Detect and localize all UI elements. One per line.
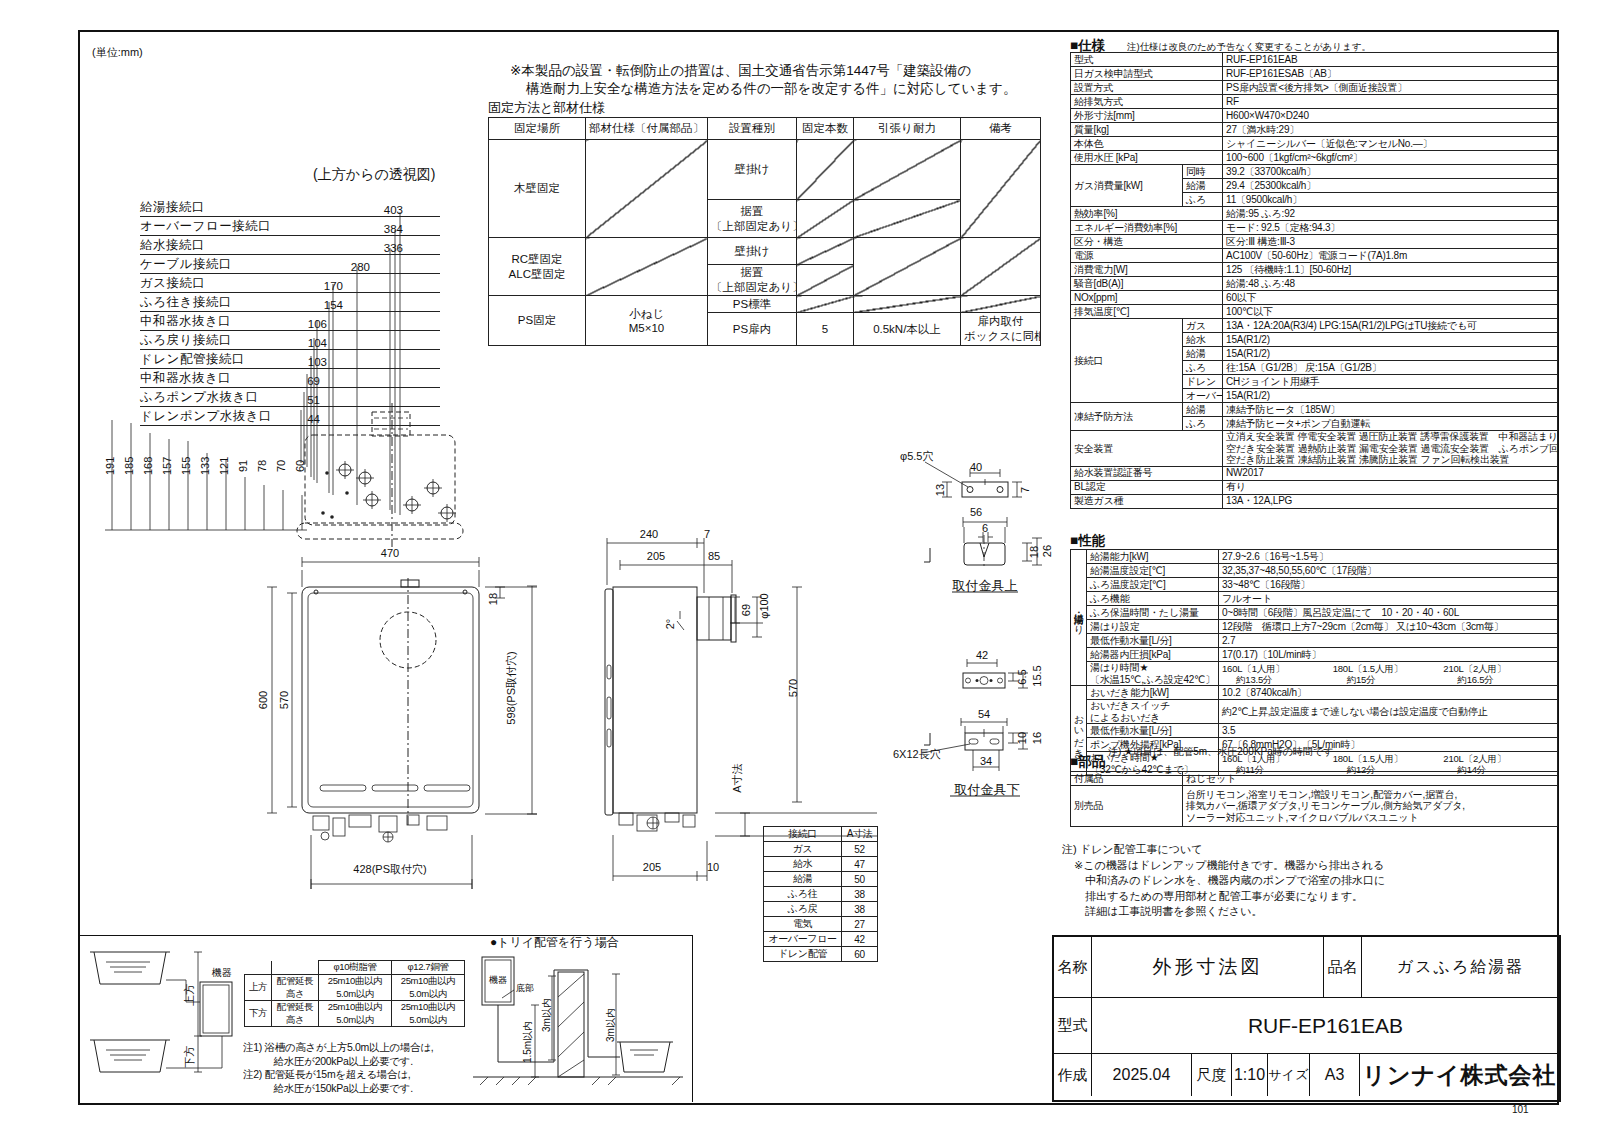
perf-value: 12段階 循環口上方7~29cm〔2cm毎〕 又は10~43cm〔3cm毎〕	[1219, 620, 1558, 634]
parts-accessory-value: ねじセット	[1183, 772, 1558, 786]
spec-gas-val2: 11〔9500kcal/h〕	[1223, 193, 1558, 207]
spec-safety-value: 立消え安全装置 停電安全装置 過圧防止装置 誘導雷保護装置 中和器詰まり検知装置…	[1223, 431, 1558, 467]
spec-value: 有り	[1223, 480, 1558, 494]
page-number: 101	[1512, 1104, 1529, 1115]
parts-optional-row: 別売品台所リモコン,浴室リモコン,増設リモコン,配管カバー,据置台,排気カバー,…	[1071, 786, 1558, 827]
fixing-ps-std: PS標準	[708, 296, 797, 313]
fixing-count: 5	[797, 313, 854, 346]
conn-row: 給水47	[764, 857, 878, 872]
tb-product: ガスふろ給湯器	[1362, 937, 1559, 997]
title-block-row1: 名称 外形寸法図 品名 ガスふろ給湯器	[1054, 937, 1559, 998]
yubari-time2: 約16.5分	[1443, 674, 1554, 685]
port-dim: 154	[324, 299, 440, 311]
spec-key: 型式	[1071, 53, 1223, 67]
spec-row: 消費電力[W]125 〔待機時:1.1〕[50-60Hz]	[1071, 263, 1558, 277]
fixing-table-title: 固定方法と部材仕様	[488, 99, 605, 117]
fixing-floor2-l1: 据置	[711, 265, 793, 280]
na-cell	[961, 238, 1041, 296]
port-dim: 69	[307, 375, 440, 387]
spec-value: 100℃以下	[1223, 305, 1558, 319]
pv2a: 5.0m以内	[322, 1014, 388, 1027]
spec-key: 排気温度[℃]	[1071, 305, 1223, 319]
pk2: 高さ	[275, 1014, 315, 1027]
conn-row: ふろ戻38	[764, 902, 878, 917]
optional-line3: ソーラー対応ユニット,マイクロバブルバスユニット	[1186, 812, 1554, 824]
na-cell	[961, 296, 1041, 313]
dim-side-a: A寸法	[731, 763, 743, 792]
tb-name: 外形寸法図	[1092, 937, 1324, 997]
spec-value: RF	[1223, 95, 1558, 109]
title-block-row2: 型式 RUF-EP161EAB	[1054, 998, 1559, 1054]
dim-front-ps-horizontal: 428(PS取付穴)	[353, 863, 426, 875]
port-row: ふろ往き接続口 154	[140, 293, 440, 312]
dim-side-bottom-10: 10	[707, 861, 719, 873]
bath-notes: 注1) 浴槽の高さが上方5.0m以上の場合は, 給水圧が200kPa以上必要です…	[243, 1041, 433, 1095]
torii-caption: ●トリイ配管を行う場合	[490, 936, 619, 949]
dim-front-offset: 18	[487, 593, 499, 605]
spec-value: PS扉内設置<後方排気>〔側面近接設置〕	[1223, 81, 1558, 95]
fixing-ps: PS固定	[489, 296, 586, 346]
spec-freeze-label: 凍結予防方法	[1071, 403, 1183, 431]
fixing-h0: 固定場所	[489, 118, 586, 140]
oidaki-col1: 180L〔1.5人用〕	[1333, 753, 1444, 764]
pk2: 高さ	[275, 988, 315, 1001]
spec-row: 給排気方式RF	[1071, 95, 1558, 109]
spec-value: 給湯:95 ふろ:92	[1223, 207, 1558, 221]
perf-value: フルオート	[1219, 592, 1558, 606]
piping-keys: 配管延長高さ	[272, 1001, 319, 1027]
spec-key: 給排気方式	[1071, 95, 1223, 109]
pv2b: 5.0m以内	[395, 1014, 461, 1027]
spec-value: 13A・12A,LPG	[1223, 494, 1558, 508]
conn-h0: 接続口	[764, 827, 842, 842]
dim-front-height: 600	[257, 691, 269, 709]
spec-conn-val3: 往:15A〔G1/2B〕 戻:15A〔G1/2B〕	[1223, 361, 1558, 375]
spec-conn-val5: 15A(R1/2)	[1223, 389, 1558, 403]
fixing-row-rc-wall: RC壁固定ALC壁固定壁掛け	[489, 238, 1041, 265]
port-label: オーバーフロー接続口	[140, 218, 271, 235]
port-row: ガス接続口 170	[140, 274, 440, 293]
port-label: ふろ戻り接続口	[140, 332, 232, 349]
conn-row: ドレン配管60	[764, 947, 878, 962]
installation-note-line1: ※本製品の設置・転倒防止の措置は、国土交通省告示第1447号「建築設備の	[510, 62, 1016, 80]
spec-row: 使用水圧 [kPa]100~600〔1kgf/cm²~6kgf/cm²〕	[1071, 151, 1558, 165]
fixing-h3: 固定本数	[797, 118, 854, 140]
spec-conn-sub5: オーバーフロー	[1183, 389, 1223, 403]
perf-value: 27.9~2.6〔16号~1.5号〕	[1219, 550, 1558, 564]
port-label: 給湯接続口	[140, 199, 205, 216]
spec-key: 日ガス検申請型式	[1071, 67, 1223, 81]
perf-value: 33~48℃〔16段階〕	[1219, 578, 1558, 592]
bracket-drawings	[880, 445, 1065, 800]
parts-accessory-label: 付属品	[1071, 772, 1183, 786]
optional-line2: 排気カバー,循環アダプタ,リモコンケーブル,側方給気アダプタ,	[1186, 800, 1554, 812]
spec-conn-row0: 接続口ガス13A・12A:20A(R3/4) LPG:15A(R1/2)LPGは…	[1071, 319, 1558, 333]
bracket-dim-155: 15.5	[1031, 665, 1043, 686]
perf-switch-k2: によるおいだき	[1090, 712, 1215, 724]
safety-line1: 立消え安全装置 停電安全装置 過圧防止装置 誘導雷保護装置 中和器詰まり検知装置	[1226, 431, 1554, 443]
v-dim: 157	[157, 430, 176, 502]
conn-a-dim: 60	[842, 947, 878, 962]
spec-row: 設置方式PS扉内設置<後方排気>〔側面近接設置〕	[1071, 81, 1558, 95]
spec-freeze-val1: 凍結予防ヒータ+ポンプ自動運転	[1223, 417, 1558, 431]
port-row: ドレンポンプ水抜き口 44	[140, 407, 440, 426]
perf-value: 0~8時間〔6段階〕風呂設定温にて 10・20・40・60L	[1219, 606, 1558, 620]
fixing-remark: 扉内取付ボックスに同梱	[961, 313, 1041, 346]
spec-gas-sub0: 同時	[1183, 165, 1223, 179]
spec-key: 設置方式	[1071, 81, 1223, 95]
parts-table: 付属品ねじセット 別売品台所リモコン,浴室リモコン,増設リモコン,配管カバー,据…	[1070, 771, 1558, 827]
spec-value: 100~600〔1kgf/cm²~6kgf/cm²〕	[1223, 151, 1558, 165]
port-label: ドレンポンプ水抜き口	[140, 408, 272, 425]
spec-value: H600×W470×D240	[1223, 109, 1558, 123]
perf-row: 給湯・湯はり給湯能力[kW]27.9~2.6〔16号~1.5号〕	[1071, 550, 1558, 564]
perf-yubari-key: 湯はり時間★〔水温15℃,ふろ設定42℃〕	[1087, 662, 1219, 686]
v-dim: 168	[138, 430, 157, 502]
port-dim: 103	[308, 356, 440, 368]
port-label: ガス接続口	[140, 275, 206, 292]
tb-model-label: 型式	[1054, 998, 1092, 1053]
drain-note-lines: ※この機器はドレンアップ機能付きです。機器から排出される 中和済みのドレン水を、…	[1062, 858, 1385, 920]
na-cell	[961, 140, 1041, 238]
blank	[272, 961, 319, 975]
conn-port: オーバーフロー	[764, 932, 842, 947]
top-view-caption: (上方からの透視図)	[313, 167, 435, 182]
spec-gas-label: ガス消費量[kW]	[1071, 165, 1183, 207]
port-dim: 44	[307, 413, 440, 425]
port-label: 給水接続口	[140, 237, 205, 254]
fixing-rc-l1: RC壁固定	[492, 252, 582, 267]
perf-yubari-value: 160L〔1人用〕約13.5分180L〔1.5人用〕約15分210L〔2人用〕約…	[1219, 662, 1558, 686]
spec-value: 125 〔待機時:1.1〕[50-60Hz]	[1223, 263, 1558, 277]
perf-key: ふろ保温時間・たし湯量	[1087, 606, 1219, 620]
v-dim: 78	[252, 430, 271, 502]
bracket-slot-label: 6X12長穴	[893, 748, 941, 760]
blank	[245, 961, 272, 975]
dim-side-bottom-205: 205	[643, 861, 661, 873]
perf-row-switch: おいだきスイッチによるおいだき約2℃上昇,設定温度まで達しない場合は設定温度で自…	[1071, 700, 1558, 724]
fixing-rc-l2: ALC壁固定	[492, 267, 582, 282]
piping-header: φ10樹脂管φ12.7銅管	[245, 961, 465, 975]
fixing-wood: 木壁固定	[489, 140, 586, 238]
na-cell	[854, 200, 961, 238]
port-row: ドレン配管接続口 103	[140, 350, 440, 369]
top-view-vertical-dims: 19118516815715513312191787060	[100, 430, 309, 502]
dim-front-inner-height: 570	[278, 691, 290, 709]
fixing-remark-l1: 扉内取付	[964, 314, 1037, 329]
spec-row: 熱効率[%]給湯:95 ふろ:92	[1071, 207, 1558, 221]
perf-value: 2.7	[1219, 634, 1558, 648]
fixing-row-wood-wall: 木壁固定壁掛け	[489, 140, 1041, 200]
piping-row-up: 上方配管延長高さ25m10曲以内5.0m以内25m10曲以内5.0m以内	[245, 975, 465, 1001]
port-label: ふろ往き接続口	[140, 294, 232, 311]
na-cell	[797, 238, 854, 265]
spec-value: 区分:Ⅲ 構造:Ⅲ-3	[1223, 235, 1558, 249]
parts-optional-label: 別売品	[1071, 786, 1183, 827]
performance-note: 注) ★項目は、配管5m、水圧200KPa時の時間です	[1108, 745, 1334, 759]
tb-name-label: 名称	[1054, 937, 1092, 997]
port-label: 中和器水抜き口	[140, 370, 231, 387]
port-dim: 403	[384, 204, 440, 216]
conn-h1: A寸法	[842, 827, 878, 842]
perf-row: 湯はり設定12段階 循環口上方7~29cm〔2cm毎〕 又は10~43cm〔3c…	[1071, 620, 1558, 634]
tb-date-label: 作成	[1054, 1054, 1092, 1096]
pk1: 配管延長	[275, 1001, 315, 1014]
bracket-hole-label: φ5.5穴	[900, 450, 933, 462]
conn-a-dim: 42	[842, 932, 878, 947]
conn-port: 電気	[764, 917, 842, 932]
bracket-dim-40: 40	[970, 461, 982, 473]
perf-key: ふろ温度設定[℃]	[1087, 578, 1219, 592]
perf-row-yubari: 湯はり時間★〔水温15℃,ふろ設定42℃〕 160L〔1人用〕約13.5分180…	[1071, 662, 1558, 686]
dim-side-570: 570	[787, 679, 799, 697]
perf-row: ふろ温度設定[℃]33~48℃〔16段階〕	[1071, 578, 1558, 592]
perf-row: おいだきおいだき能力[kW]10.2〔8740kcal/h〕	[1071, 686, 1558, 700]
spec-value: 27〔満水時:29〕	[1223, 123, 1558, 137]
tb-product-label: 品名	[1324, 937, 1362, 997]
spec-value: シャイニーシルバー〔近似色:マンセルNo.—〕	[1223, 137, 1558, 151]
v-dim: 133	[195, 430, 214, 502]
fixing-pull: 0.5kN/本以上	[854, 313, 961, 346]
piping-col1: φ10樹脂管	[319, 961, 392, 975]
unit-note: (単位:mm)	[92, 46, 143, 58]
tb-size: A3	[1310, 1054, 1360, 1096]
piping-v1: 25m10曲以内5.0m以内	[319, 975, 392, 1001]
perf-switch-key: おいだきスイッチによるおいだき	[1087, 700, 1219, 724]
pv1a: 25m10曲以内	[322, 975, 388, 988]
spec-row: エネルギー消費効率[%]モード: 92.5〔定格:94.3〕	[1071, 221, 1558, 235]
title-block-row3: 作成 2025.04 尺度 1:10 サイズ A3 リンナイ株式会社	[1054, 1054, 1559, 1096]
fixing-rc: RC壁固定ALC壁固定	[489, 238, 586, 296]
bath-note2a: 注2) 配管延長が15mを超える場合は,	[243, 1068, 433, 1082]
tb-scale-label: 尺度	[1192, 1054, 1232, 1096]
conn-row: オーバーフロー42	[764, 932, 878, 947]
dim-side-angle: 2°	[664, 619, 676, 630]
bracket-dim-6: 6	[982, 522, 988, 534]
conn-a-dim: 27	[842, 917, 878, 932]
port-dim: 280	[351, 261, 440, 273]
spec-key: 外形寸法[mm]	[1071, 109, 1223, 123]
conn-row: 電気27	[764, 917, 878, 932]
fixing-screw-l1: 小ねじ	[589, 307, 704, 322]
spec-freeze-sub1: ふろ	[1183, 417, 1223, 431]
fixing-header-row: 固定場所部材仕様〔付属部品〕設置種別固定本数引張り耐力備考	[489, 118, 1041, 140]
spec-key: 騒音[dB(A)]	[1071, 277, 1223, 291]
title-block: 名称 外形寸法図 品名 ガスふろ給湯器 型式 RUF-EP161EAB 作成 2…	[1052, 935, 1561, 1102]
spec-freeze-val0: 凍結予防ヒータ〔185W〕	[1223, 403, 1558, 417]
yubari-col2: 210L〔2人用〕	[1443, 663, 1554, 674]
fixing-floor2: 据置〔上部固定あり〕	[708, 265, 797, 296]
spec-safety-row: 安全装置立消え安全装置 停電安全装置 過圧防止装置 誘導雷保護装置 中和器詰まり…	[1071, 431, 1558, 467]
port-dim: 336	[384, 242, 440, 254]
port-row: ふろ戻り接続口 104	[140, 331, 440, 350]
dim-side-85: 85	[708, 550, 720, 562]
port-label: ふろポンプ水抜き口	[140, 389, 259, 406]
tb-company: リンナイ株式会社	[1360, 1054, 1559, 1096]
piping-pos-down: 下方	[245, 1001, 272, 1027]
perf-key: 最低作動水量[L/分]	[1087, 634, 1219, 648]
spec-gas-val1: 29.4〔25300kcal/h〕	[1223, 179, 1558, 193]
performance-table: 給湯・湯はり給湯能力[kW]27.9~2.6〔16号~1.5号〕 給湯温度設定[…	[1070, 549, 1558, 776]
perf-key: 給湯能力[kW]	[1087, 550, 1219, 564]
bracket-dim-16: 16	[1031, 732, 1043, 744]
perf-yubari-k2: 〔水温15℃,ふろ設定42℃〕	[1090, 674, 1215, 686]
spec-row: NOx[ppm]60以下	[1071, 291, 1558, 305]
spec-row: 質量[kg]27〔満水時:29〕	[1071, 123, 1558, 137]
bath-note1b: 給水圧が200kPa以上必要です.	[243, 1055, 433, 1069]
port-label: ケーブル接続口	[140, 256, 232, 273]
perf-row: ふろ機能フルオート	[1071, 592, 1558, 606]
parts-accessory-row: 付属品ねじセット	[1071, 772, 1558, 786]
spec-key: 本体色	[1071, 137, 1223, 151]
na-cell	[797, 296, 854, 313]
spec-value: NW2017	[1223, 466, 1558, 480]
spec-value: AC100V〔50-60Hz〕電源コード(7A)1.8m	[1223, 249, 1558, 263]
fixing-floor: 据置〔上部固定あり〕	[708, 200, 797, 238]
piping-v1: 25m10曲以内5.0m以内	[319, 1001, 392, 1027]
spec-value: 60以下	[1223, 291, 1558, 305]
fixing-remark-l2: ボックスに同梱	[964, 329, 1037, 344]
bracket-dim-34: 34	[980, 755, 992, 767]
spec-conn-label: 接続口	[1071, 319, 1183, 403]
fixing-h4: 引張り耐力	[854, 118, 961, 140]
dim-side-phi100: φ100	[758, 593, 770, 619]
conn-port: ガス	[764, 842, 842, 857]
dim-side-69: 69	[740, 604, 752, 616]
conn-a-dim: 50	[842, 872, 878, 887]
v-dim: 70	[271, 430, 290, 502]
v-dim: 60	[290, 430, 309, 502]
bracket-top-caption: 取付金具上	[953, 579, 1018, 593]
piping-row-down: 下方配管延長高さ25m10曲以内5.0m以内25m10曲以内5.0m以内	[245, 1001, 465, 1027]
port-row: ケーブル接続口 280	[140, 255, 440, 274]
na-cell	[797, 200, 854, 238]
top-view-port-list: 給湯接続口 403 オーバーフロー接続口 384 給水接続口 336 ケーブル接…	[140, 198, 440, 426]
tb-scale: 1:10	[1232, 1054, 1268, 1096]
perf-row: 給湯器内圧損[kPa]17(0.17)〔10L/min時〕	[1071, 648, 1558, 662]
pv1b: 25m10曲以内	[395, 1001, 461, 1014]
port-dim: 170	[324, 280, 440, 292]
na-cell	[586, 140, 708, 238]
fixing-h2: 設置種別	[708, 118, 797, 140]
drawing-sheet: (単位:mm) ※本製品の設置・転倒防止の措置は、国土交通省告示第1447号「建…	[0, 0, 1600, 1131]
yubari-time1: 約15分	[1333, 674, 1444, 685]
spec-row: 外形寸法[mm]H600×W470×D240	[1071, 109, 1558, 123]
spec-key: 給水装置認証番号	[1071, 466, 1223, 480]
bath-note2b: 給水圧が150kPa以上必要です.	[243, 1082, 433, 1096]
perf-key: 湯はり設定	[1087, 620, 1219, 634]
perf-value: 17(0.17)〔10L/min時〕	[1219, 648, 1558, 662]
perf-switch-value: 約2℃上昇,設定温度まで達しない場合は設定温度で自動停止	[1219, 700, 1558, 724]
piping-pos-up: 上方	[245, 975, 272, 1001]
parts-optional-value: 台所リモコン,浴室リモコン,増設リモコン,配管カバー,据置台,排気カバー,循環ア…	[1183, 786, 1558, 827]
spec-row: 区分・構造区分:Ⅲ 構造:Ⅲ-3	[1071, 235, 1558, 249]
spec-conn-val2: 15A(R1/2)	[1223, 347, 1558, 361]
perf-row: 最低作動水量[L/分]2.7	[1071, 634, 1558, 648]
pv2b: 5.0m以内	[395, 988, 461, 1001]
fixing-h5: 備考	[961, 118, 1041, 140]
tb-model: RUF-EP161EAB	[1092, 998, 1559, 1053]
yubari-time0: 約13.5分	[1222, 674, 1333, 685]
conn-header: 接続口A寸法	[764, 827, 878, 842]
port-label: ドレン配管接続口	[140, 351, 245, 368]
yubari-col1: 180L〔1.5人用〕	[1333, 663, 1444, 674]
port-row: オーバーフロー接続口 384	[140, 217, 440, 236]
spec-key: 製造ガス種	[1071, 494, 1223, 508]
spec-key: 使用水圧 [kPa]	[1071, 151, 1223, 165]
spec-conn-sub1: 給水	[1183, 333, 1223, 347]
fixing-floor-l1: 据置	[711, 204, 793, 219]
installation-note-line2: 構造耐力上安全な構造方法を定める件の一部を改定する件」に対応しています。	[510, 80, 1016, 98]
bracket-dim-56: 56	[970, 506, 982, 518]
spec-key: エネルギー消費効率[%]	[1071, 221, 1223, 235]
spec-conn-sub4: ドレン	[1183, 375, 1223, 389]
conn-port: ふろ戻	[764, 902, 842, 917]
spec-conn-val4: CHジョイント用継手	[1223, 375, 1558, 389]
drain-line2: 中和済みのドレン水を、機器内蔵のポンプで浴室の排水口に	[1074, 873, 1385, 889]
port-dim: 51	[307, 394, 440, 406]
bracket-dim-42: 42	[976, 649, 988, 661]
bath-machine-label: 機器	[212, 967, 232, 978]
conn-port: ドレン配管	[764, 947, 842, 962]
perf-row: ふろ保温時間・たし湯量0~8時間〔6段階〕風呂設定温にて 10・20・40・60…	[1071, 606, 1558, 620]
v-dim: 191	[100, 430, 119, 502]
bracket-dim-13: 13	[934, 484, 946, 496]
dim-side-205: 205	[647, 550, 665, 562]
conn-row: 給湯50	[764, 872, 878, 887]
fixing-table: 固定場所部材仕様〔付属部品〕設置種別固定本数引張り耐力備考 木壁固定壁掛け 据置…	[488, 117, 1041, 346]
spec-key: 区分・構造	[1071, 235, 1223, 249]
bracket-dim-7: 7	[1019, 487, 1031, 493]
spec-freeze-sub0: 給湯	[1183, 403, 1223, 417]
na-cell	[854, 140, 961, 200]
perf-key: おいだき能力[kW]	[1087, 686, 1219, 700]
drain-line1: ※この機器はドレンアップ機能付きです。機器から排出される	[1074, 858, 1385, 874]
fixing-row-ps-std: PS固定小ねじM5×10PS標準	[489, 296, 1041, 313]
spec-gas-sub2: ふろ	[1183, 193, 1223, 207]
conn-a-dim: 38	[842, 887, 878, 902]
spec-key: 消費電力[W]	[1071, 263, 1223, 277]
spec-row: 型式RUF-EP161EAB	[1071, 53, 1558, 67]
fixing-screw-l2: M5×10	[589, 322, 704, 334]
pv1b: 25m10曲以内	[395, 975, 461, 988]
fixing-screw: 小ねじM5×10	[586, 296, 708, 346]
bracket-dim-18: 18	[1028, 546, 1040, 558]
optional-line1: 台所リモコン,浴室リモコン,増設リモコン,配管カバー,据置台,	[1186, 789, 1554, 801]
spec-freeze-row0: 凍結予防方法給湯凍結予防ヒータ〔185W〕	[1071, 403, 1558, 417]
spec-row: 騒音[dB(A)]給湯:48 ふろ:48	[1071, 277, 1558, 291]
dim-front-width: 470	[381, 547, 399, 559]
piping-v2: 25m10曲以内5.0m以内	[392, 1001, 465, 1027]
tb-size-label: サイズ	[1268, 1054, 1310, 1096]
pv1a: 25m10曲以内	[322, 1001, 388, 1014]
v-dim: 91	[233, 430, 252, 502]
conn-a-dim: 47	[842, 857, 878, 872]
torii-machine-label: 機器	[489, 976, 507, 986]
dim-side-7: 7	[704, 528, 710, 540]
v-dim: 121	[214, 430, 233, 502]
fixing-floor-l2: 〔上部固定あり〕	[711, 219, 793, 234]
spec-conn-sub3: ふろ	[1183, 361, 1223, 375]
bracket-dim-54: 54	[978, 708, 990, 720]
safety-line3: 空だき防止装置 凍結防止装置 沸騰防止装置 ファン回転検出装置	[1226, 454, 1554, 466]
port-row: ふろポンプ水抜き口 51	[140, 388, 440, 407]
fixing-ps-door: PS扉内	[708, 313, 797, 346]
drain-line4: 詳細は工事説明書を参照ください。	[1074, 904, 1385, 920]
fixing-floor2-l2: 〔上部固定あり〕	[711, 280, 793, 295]
drain-line3: 排出するための専用部材と配管工事が必要になります。	[1074, 889, 1385, 905]
port-label: 中和器水抜き口	[140, 313, 231, 330]
